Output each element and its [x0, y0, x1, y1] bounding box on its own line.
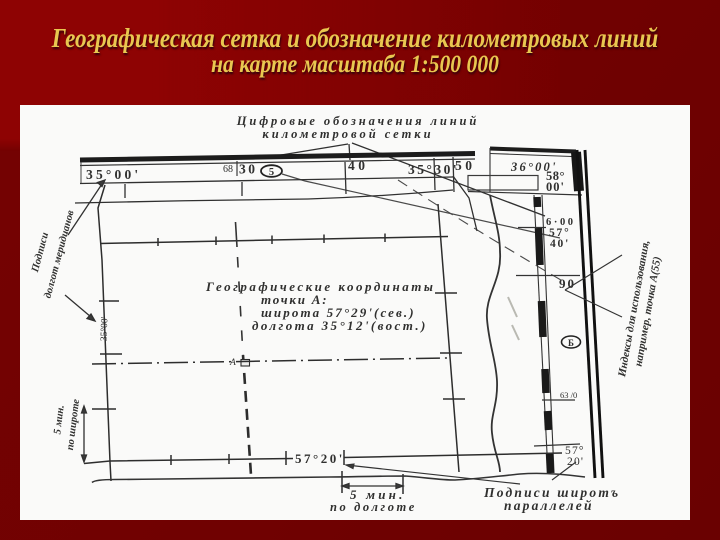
svg-text:Цифровые обозначения линий: Цифровые обозначения линий — [236, 114, 480, 128]
svg-text:35°00': 35°00' — [86, 167, 141, 182]
svg-text:Б: Б — [568, 338, 574, 348]
svg-text:40': 40' — [550, 238, 570, 250]
svg-text:40: 40 — [348, 158, 369, 173]
svg-text:35°00': 35°00' — [99, 316, 111, 341]
svg-text:параллелей: параллелей — [504, 498, 594, 513]
svg-text:68: 68 — [223, 164, 233, 175]
svg-text:долгота 35°12'(вост.): долгота 35°12'(вост.) — [252, 318, 428, 333]
svg-text:А: А — [229, 358, 236, 368]
svg-text:долгот меридианов: долгот меридианов — [43, 209, 77, 300]
svg-text:по долготе: по долготе — [330, 500, 417, 514]
svg-text:по широте: по широте — [65, 398, 82, 451]
svg-text:50: 50 — [455, 158, 476, 173]
svg-text:63 /0: 63 /0 — [560, 390, 577, 400]
svg-text:30: 30 — [239, 162, 258, 177]
svg-text:57°20': 57°20' — [295, 451, 345, 466]
svg-text:5 мин.: 5 мин. — [52, 404, 66, 434]
svg-text:5: 5 — [269, 167, 274, 178]
svg-text:Подписи: Подписи — [30, 231, 51, 274]
svg-text:00': 00' — [546, 180, 565, 194]
svg-text:километровой сетки: километровой сетки — [262, 127, 433, 141]
